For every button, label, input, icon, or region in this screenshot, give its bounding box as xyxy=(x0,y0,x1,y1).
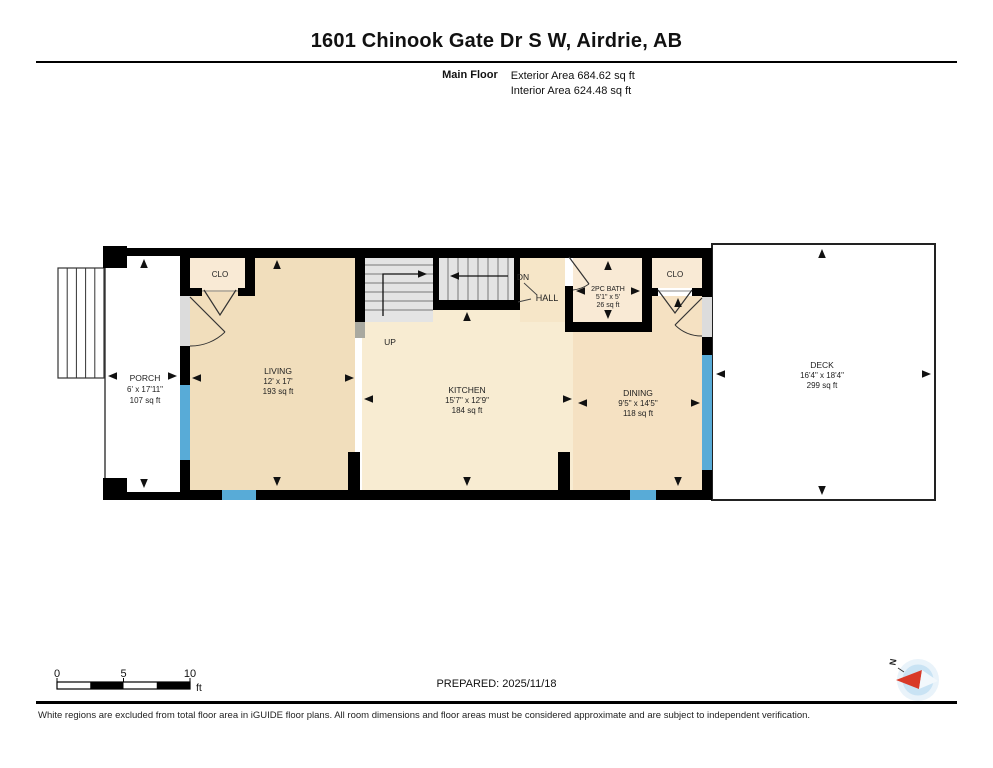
window-living-left xyxy=(180,385,190,460)
back-door-threshold xyxy=(702,297,712,337)
front-door-threshold xyxy=(180,296,190,346)
deck-dims: 16'4" x 18'4" xyxy=(800,371,844,380)
living-area-label: 193 sq ft xyxy=(263,387,294,396)
prepared-date: PREPARED: 2025/11/18 xyxy=(0,678,993,690)
stairs-up-label: UP xyxy=(384,337,396,347)
deck-label: DECK xyxy=(810,360,834,370)
bath-dims: 5'1" x 5' xyxy=(596,294,620,301)
dining-label: DINING xyxy=(623,388,653,398)
stair-newel xyxy=(355,322,365,338)
window-dining-right xyxy=(702,355,712,470)
dining-area-label: 118 sq ft xyxy=(623,409,654,418)
closet-right-label: CLO xyxy=(667,270,683,279)
bath-area-label: 26 sq ft xyxy=(597,302,620,309)
dining-dims: 9'5" x 14'5" xyxy=(618,399,658,408)
hall-floor xyxy=(520,256,565,322)
floor-plan-svg: PORCH 6' x 17'11" 107 sq ft LIVING 12' x… xyxy=(0,0,993,768)
hall-label: HALL xyxy=(536,293,559,303)
kitchen-label: KITCHEN xyxy=(448,385,485,395)
compass-north-label: N xyxy=(888,658,899,666)
porch-steps xyxy=(58,268,104,378)
footer-divider xyxy=(36,701,957,704)
stairs-down-label: DN xyxy=(517,272,529,282)
deck-area-label: 299 sq ft xyxy=(807,381,838,390)
living-dims: 12' x 17' xyxy=(263,377,293,386)
porch-dims: 6' x 17'11" xyxy=(127,385,163,394)
bath-label: 2PC BATH xyxy=(591,286,625,293)
window-dining-bottom xyxy=(630,490,656,500)
window-living-bottom xyxy=(222,490,256,500)
closet-left-label: CLO xyxy=(212,270,228,279)
disclaimer-text: White regions are excluded from total fl… xyxy=(38,710,968,721)
kitchen-dims: 15'7" x 12'9" xyxy=(445,396,489,405)
kitchen-area-label: 184 sq ft xyxy=(452,406,483,415)
living-label: LIVING xyxy=(264,366,292,376)
porch-label: PORCH xyxy=(130,373,161,383)
porch-area-label: 107 sq ft xyxy=(130,396,161,405)
